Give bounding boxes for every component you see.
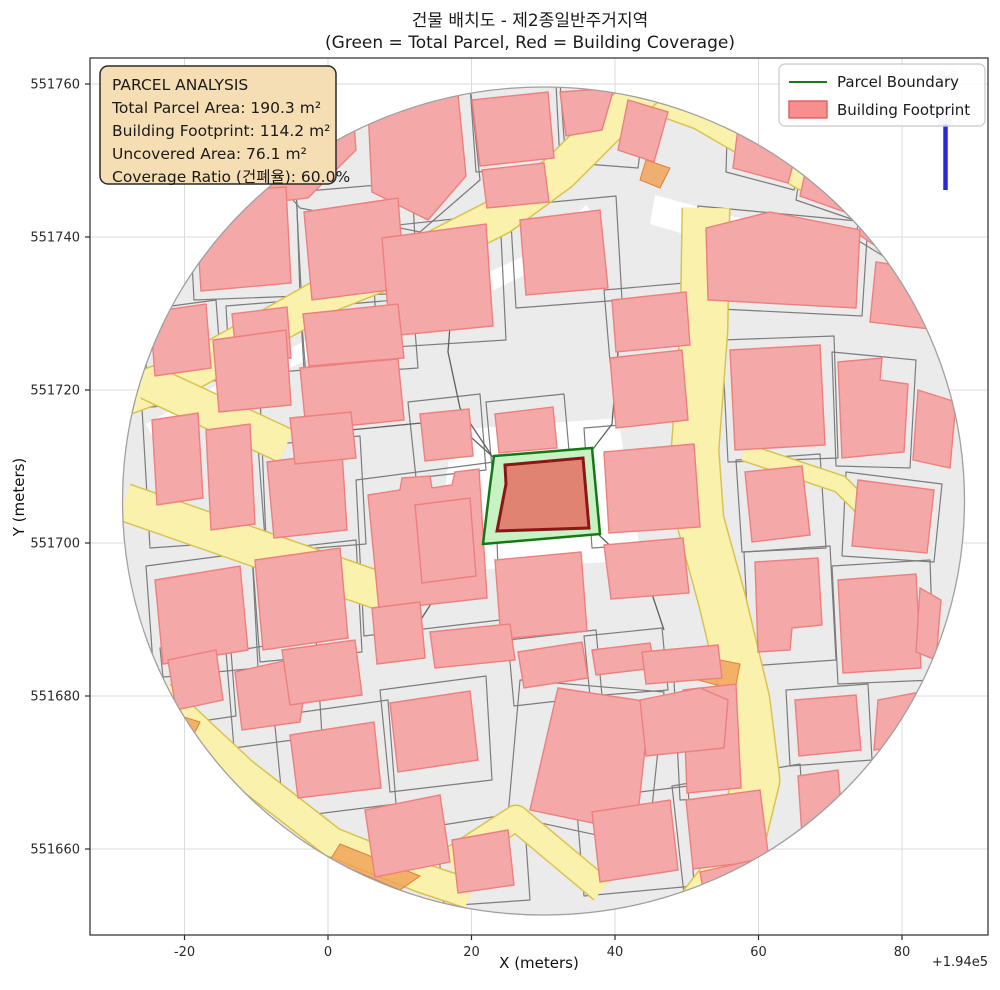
x-tick-label: 40	[607, 945, 624, 960]
building-footprint-polygon	[372, 602, 425, 664]
building-footprint-polygon	[420, 409, 473, 461]
x-tick-label: -20	[174, 945, 195, 960]
building-footprint-polygon	[482, 163, 549, 208]
building-footprint-polygon	[706, 212, 860, 308]
building-footprint-polygon	[152, 413, 203, 505]
info-title: PARCEL ANALYSIS	[112, 76, 248, 94]
building-footprint-polygon	[838, 574, 921, 673]
building-footprint-polygon	[730, 345, 825, 450]
y-tick-label: 551700	[30, 537, 80, 552]
y-tick-layer: 551760551740551720551700551680551660	[30, 78, 90, 858]
axis-offset-label: +1.94e5	[932, 955, 988, 970]
y-tick-label: 551720	[30, 384, 80, 399]
building-footprint-polygon	[592, 800, 678, 882]
y-axis-label: Y (meters)	[10, 458, 28, 538]
y-tick-label: 551740	[30, 231, 80, 246]
building-footprint-polygon	[155, 566, 248, 664]
building-footprint-polygon	[168, 650, 223, 710]
building-footprint-polygon	[520, 210, 608, 295]
building-footprint-polygon	[415, 498, 476, 583]
building-footprint-polygon	[612, 292, 690, 352]
building-footprint-polygon	[745, 466, 810, 542]
building-footprint-polygon	[610, 350, 688, 428]
building-footprint-polygon	[604, 538, 689, 599]
x-axis-label: X (meters)	[499, 954, 579, 972]
building-footprint-polygon	[290, 412, 356, 464]
building-footprint-polygon	[604, 444, 700, 533]
building-footprint-polygon	[255, 548, 348, 650]
x-tick-label: 0	[324, 945, 332, 960]
x-tick-label: 80	[894, 945, 911, 960]
highlighted-building-footprint	[497, 458, 589, 531]
info-line-total-area: Total Parcel Area: 190.3 m²	[111, 99, 321, 117]
info-line-uncovered: Uncovered Area: 76.1 m²	[112, 145, 307, 163]
building-footprint-polygon	[795, 695, 861, 756]
legend-building-patch-swatch	[789, 101, 827, 118]
info-line-footprint: Building Footprint: 114.2 m²	[112, 122, 330, 140]
building-footprint-polygon	[303, 304, 404, 366]
building-footprint-polygon	[472, 92, 554, 166]
building-footprint-polygon	[365, 795, 450, 877]
building-footprint-polygon	[852, 480, 934, 553]
x-tick-label: 60	[750, 945, 767, 960]
building-footprint-polygon	[390, 691, 478, 772]
chart-title: 건물 배치도 - 제2종일반주거지역	[412, 11, 648, 31]
building-footprint-polygon	[686, 790, 769, 869]
building-footprint-polygon	[640, 688, 728, 756]
legend: Parcel Boundary Building Footprint	[779, 64, 985, 126]
chart-subtitle: (Green = Total Parcel, Red = Building Co…	[325, 33, 735, 53]
legend-label-parcel: Parcel Boundary	[837, 73, 959, 91]
building-footprint-polygon	[452, 830, 514, 893]
y-tick-label: 551660	[30, 843, 80, 858]
info-line-coverage: Coverage Ratio (건폐율): 60.0%	[112, 168, 350, 186]
building-footprint-polygon	[495, 407, 557, 453]
building-footprint-polygon	[282, 640, 362, 705]
parcel-map-figure: 건물 배치도 - 제2종일반주거지역 (Green = Total Parcel…	[0, 0, 1000, 990]
building-footprint-polygon	[267, 452, 347, 538]
building-footprint-polygon	[213, 330, 291, 412]
building-footprint-polygon	[430, 624, 515, 668]
building-footprint-polygon	[206, 424, 255, 530]
building-footprint-polygon	[642, 645, 722, 684]
x-tick-label: 20	[463, 945, 480, 960]
y-tick-label: 551760	[30, 78, 80, 93]
parcel-analysis-box: PARCEL ANALYSIS Total Parcel Area: 190.3…	[100, 66, 350, 186]
legend-label-building: Building Footprint	[837, 101, 970, 119]
building-footprint-polygon	[913, 390, 956, 468]
y-tick-label: 551680	[30, 690, 80, 705]
building-footprint-polygon	[290, 722, 381, 798]
figure: 건물 배치도 - 제2종일반주거지역 (Green = Total Parcel…	[0, 0, 1000, 990]
